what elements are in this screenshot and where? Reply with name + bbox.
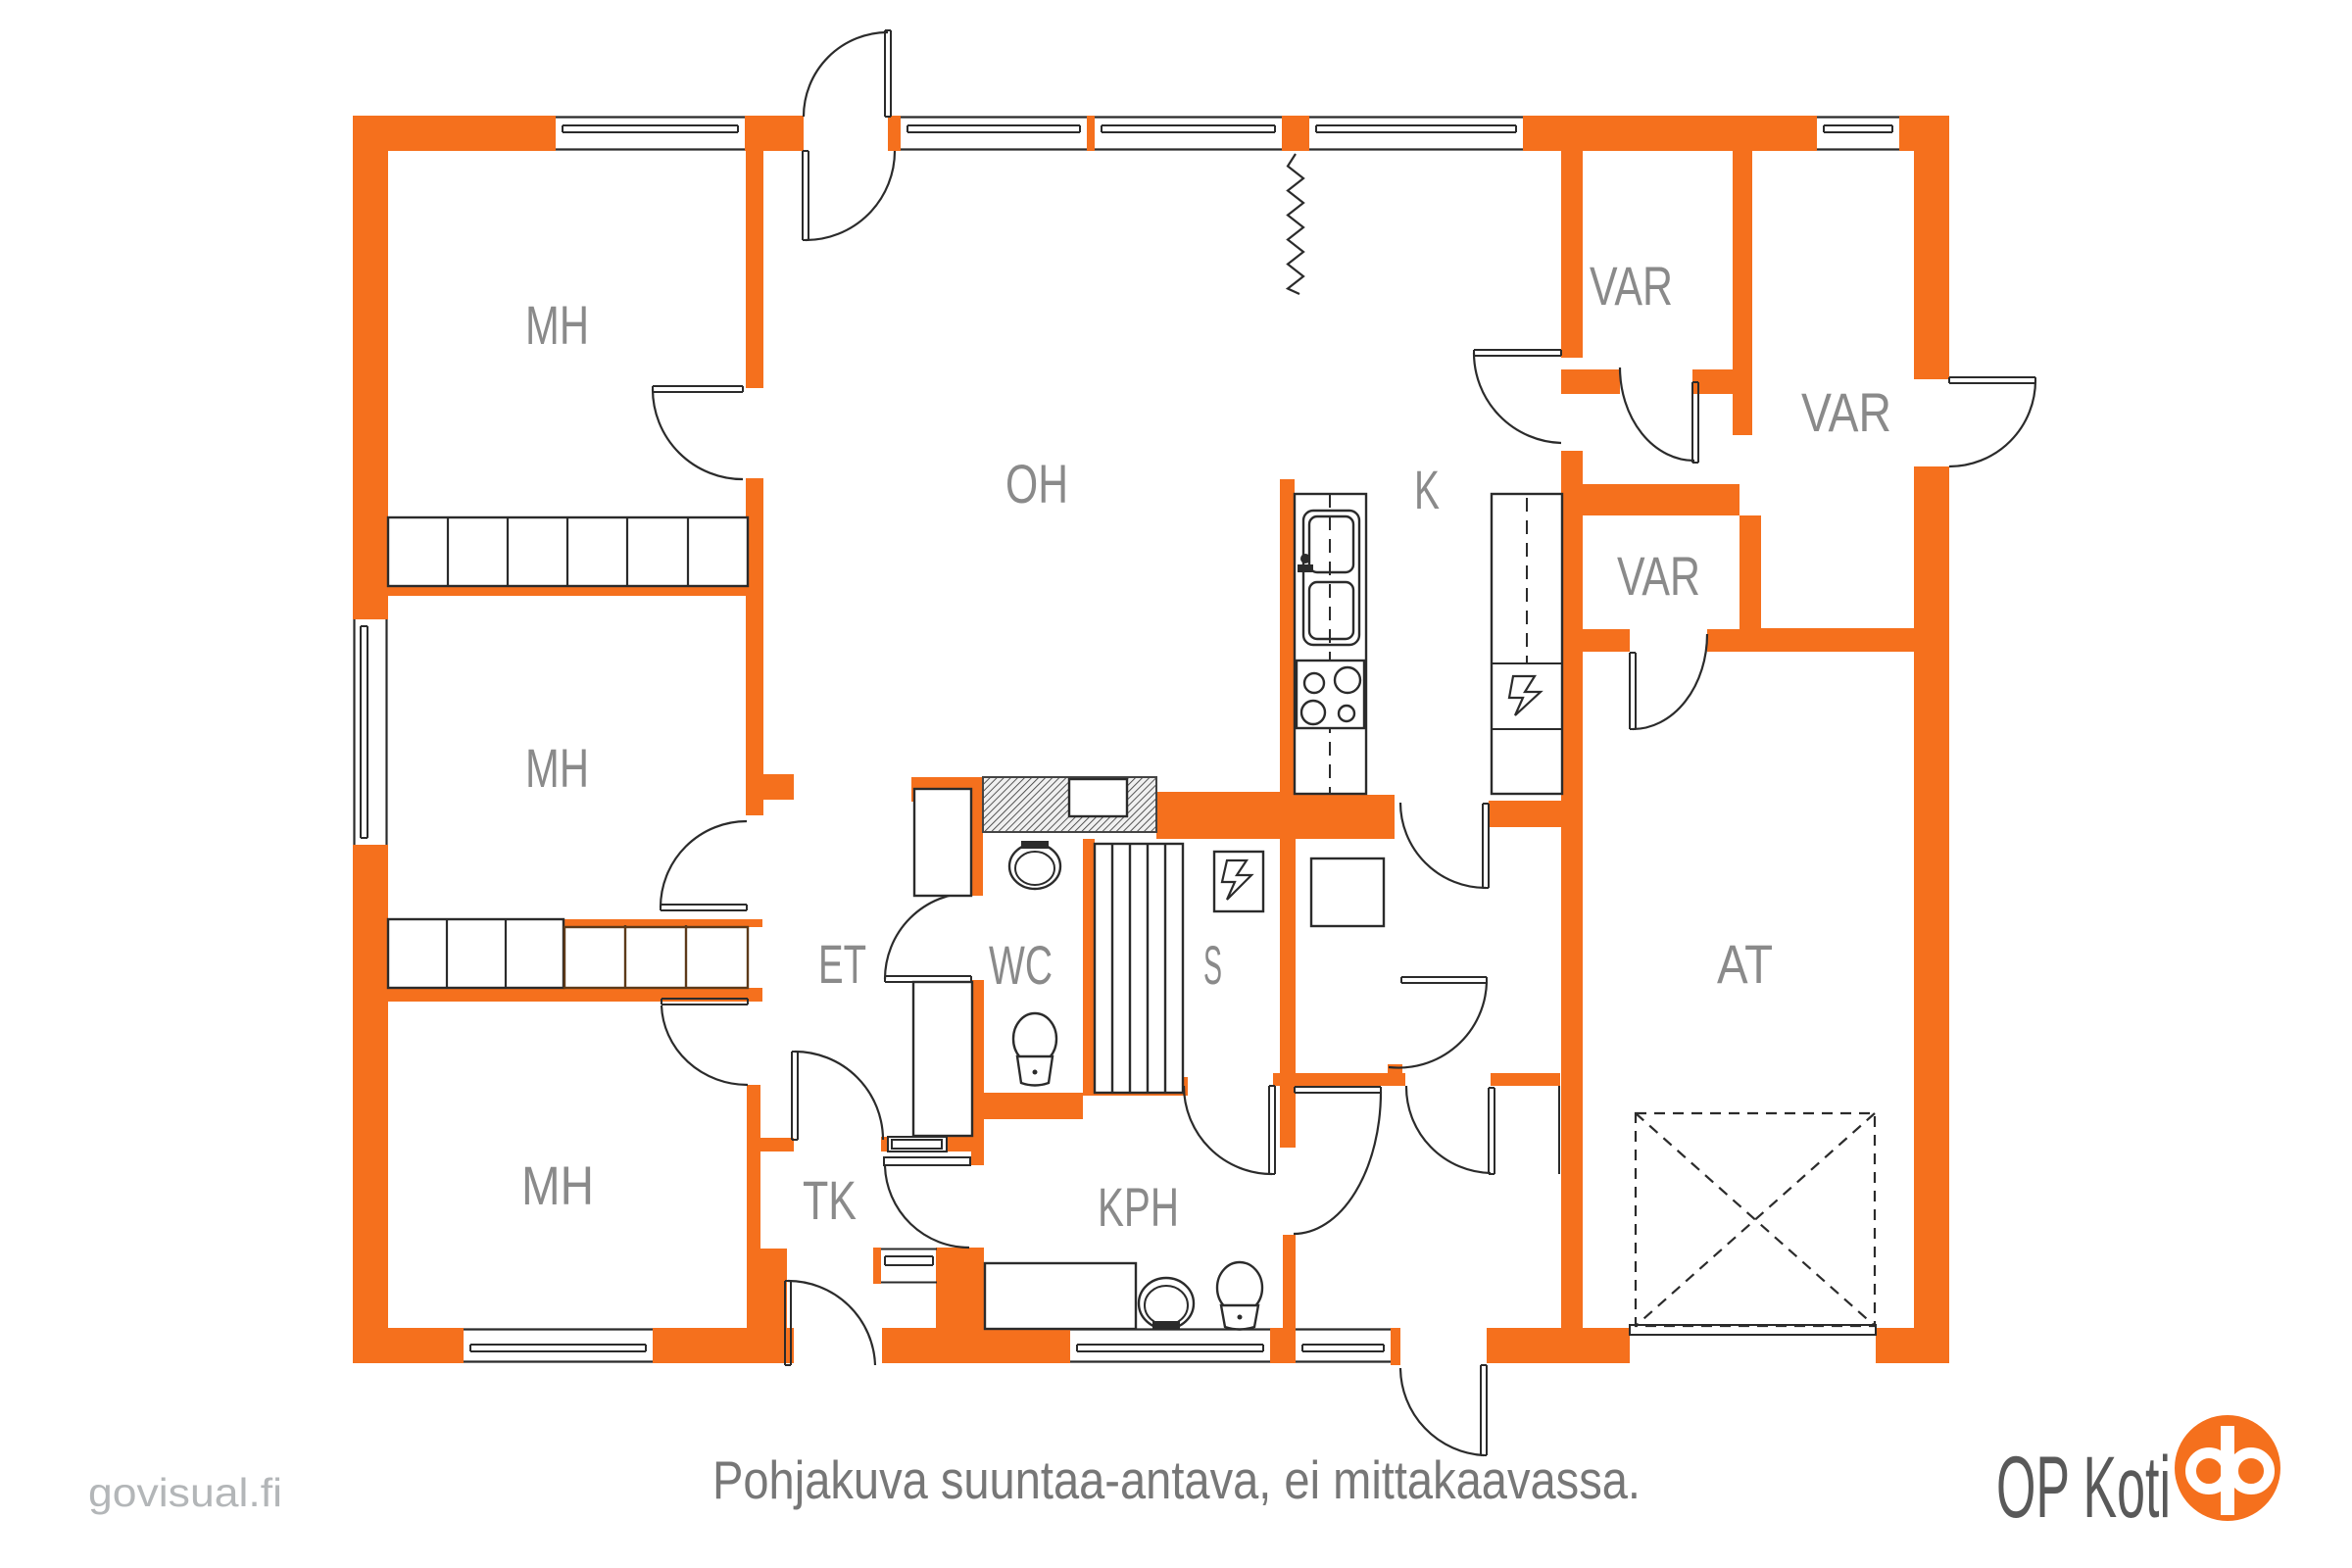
svg-text:KPH: KPH xyxy=(1098,1176,1179,1238)
svg-text:ET: ET xyxy=(818,933,866,995)
svg-text:OP Koti: OP Koti xyxy=(1996,1438,2171,1536)
svg-text:Pohjakuva suuntaa-antava, ei m: Pohjakuva suuntaa-antava, ei mittakaavas… xyxy=(712,1449,1641,1510)
svg-text:MH: MH xyxy=(521,1154,594,1216)
svg-text:VAR: VAR xyxy=(1801,381,1891,443)
svg-text:MH: MH xyxy=(525,294,589,356)
svg-text:S: S xyxy=(1203,934,1222,996)
svg-text:VAR: VAR xyxy=(1617,545,1700,607)
svg-text:MH: MH xyxy=(525,737,589,799)
svg-text:WC: WC xyxy=(989,934,1053,996)
svg-text:govisual.fi: govisual.fi xyxy=(88,1470,282,1515)
svg-text:TK: TK xyxy=(803,1169,857,1231)
svg-text:K: K xyxy=(1414,459,1440,520)
svg-text:VAR: VAR xyxy=(1590,255,1673,317)
svg-text:AT: AT xyxy=(1717,933,1773,995)
svg-text:OH: OH xyxy=(1005,453,1068,514)
